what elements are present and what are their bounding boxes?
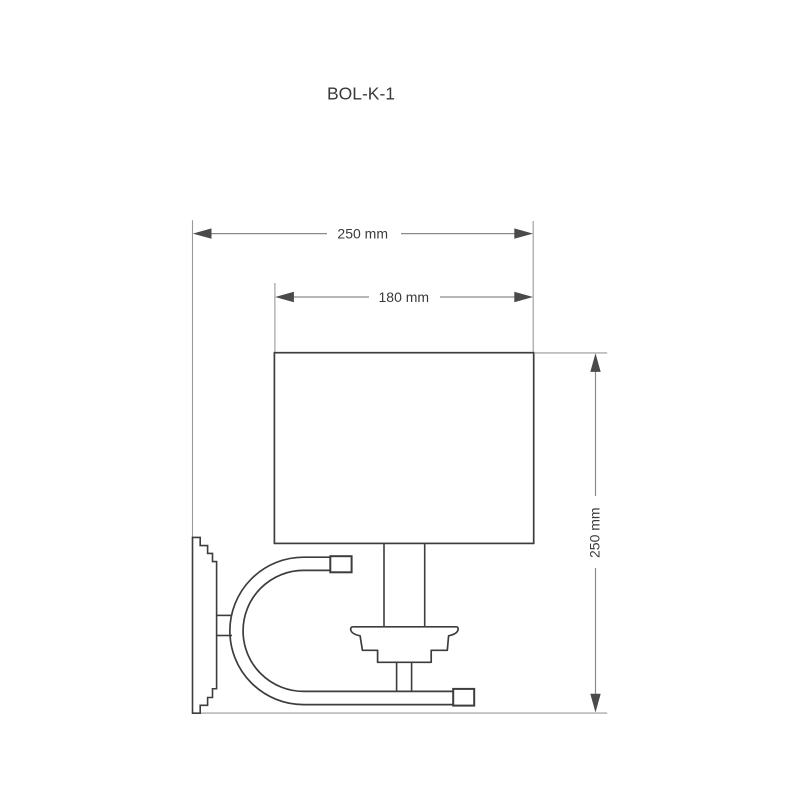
svg-text:250 mm: 250 mm [337, 226, 388, 242]
svg-text:BOL-K-1: BOL-K-1 [327, 84, 395, 104]
svg-text:180 mm: 180 mm [379, 289, 430, 305]
svg-text:250 mm: 250 mm [587, 507, 603, 558]
